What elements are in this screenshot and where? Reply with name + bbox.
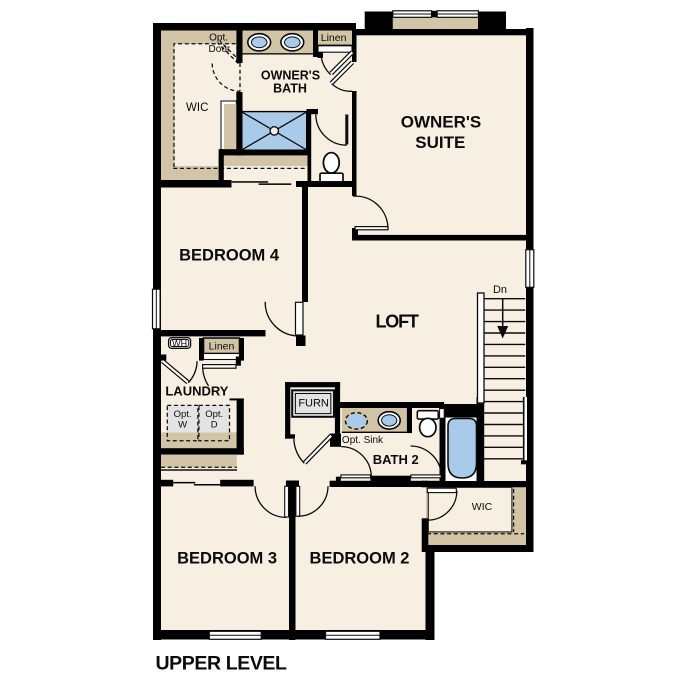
svg-text:Opt. Sink: Opt. Sink (342, 435, 384, 446)
svg-text:WIC: WIC (186, 102, 208, 114)
svg-text:LAUNDRY: LAUNDRY (165, 384, 228, 399)
svg-text:BATH 2: BATH 2 (373, 452, 419, 467)
svg-text:D: D (211, 420, 218, 431)
svg-text:Linen: Linen (321, 32, 347, 44)
svg-text:W: W (178, 420, 187, 431)
svg-text:BEDROOM 3: BEDROOM 3 (177, 549, 277, 567)
svg-text:FURN: FURN (298, 397, 329, 409)
svg-text:OWNER'S: OWNER'S (261, 68, 320, 82)
svg-text:Opt.: Opt. (209, 33, 228, 44)
svg-text:BEDROOM 2: BEDROOM 2 (310, 549, 410, 567)
svg-text:BEDROOM 4: BEDROOM 4 (179, 246, 280, 264)
svg-text:WIC: WIC (472, 501, 493, 513)
svg-text:Opt.: Opt. (205, 409, 223, 420)
svg-text:Dn: Dn (493, 284, 507, 296)
svg-text:Linen: Linen (209, 340, 235, 352)
svg-text:BATH: BATH (273, 82, 307, 96)
svg-text:UPPER LEVEL: UPPER LEVEL (156, 653, 288, 675)
svg-text:Door: Door (209, 44, 231, 55)
svg-text:LOFT: LOFT (376, 311, 419, 331)
svg-text:Opt.: Opt. (174, 409, 192, 420)
svg-text:OWNER'S: OWNER'S (401, 113, 482, 132)
svg-text:WH: WH (172, 338, 187, 348)
svg-text:SUITE: SUITE (415, 133, 465, 152)
